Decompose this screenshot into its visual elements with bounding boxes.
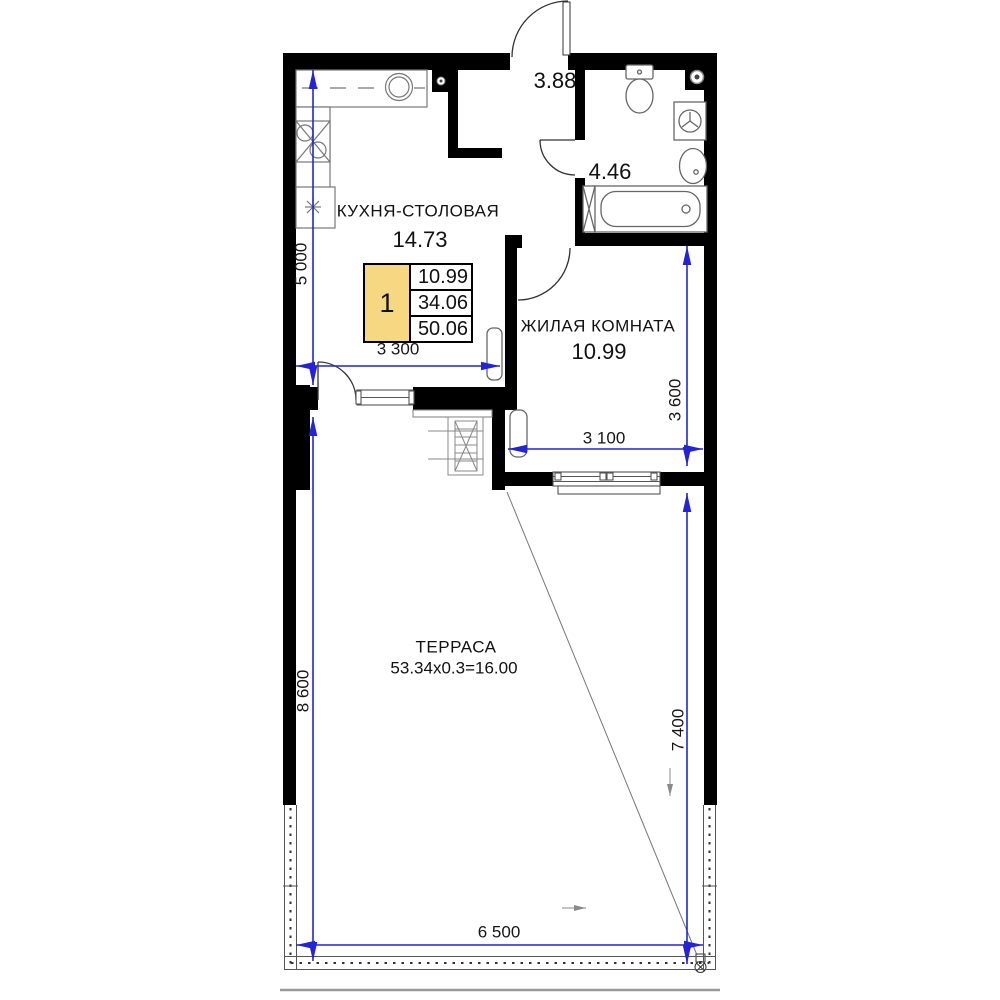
living-room-window [553,472,660,494]
total-area-value: 50.06 [411,317,471,341]
terrace-door [318,362,356,400]
floor-plan-drawing [0,0,1000,1000]
dim-8600-label: 8 600 [295,670,312,713]
entrance-door [512,1,570,57]
wall-terrace-left-jamb [283,387,318,410]
vent-dot-icon [440,80,443,83]
dim-6500-label: 6 500 [478,924,521,941]
toilet-icon [626,65,653,113]
wall-living-window-left [492,472,553,486]
kitchen-room-area: 14.73 [392,229,447,251]
wall-kitchen-divider-h [448,148,502,158]
wall-ledge [413,410,492,417]
kitchen-room-label: КУХНЯ-СТОЛОВАЯ [337,203,500,220]
radiator-icon [487,328,502,380]
hallway-area: 3.88 [534,70,577,92]
areas-column: 10.99 34.06 50.06 [411,265,471,341]
floor-plan: КУХНЯ-СТОЛОВАЯ 14.73 ЖИЛАЯ КОМНАТА 10.99… [0,0,1000,1000]
apartment-area-value: 34.06 [411,291,471,317]
bathroom-fixtures [583,65,707,232]
stove-icon [296,187,335,228]
walls [283,53,717,805]
wall-kitchen-terrace [413,387,505,410]
dim-3100-label: 3 100 [583,430,626,447]
window-sill [558,486,660,494]
terrace-details [428,417,706,973]
stairs-icon [428,417,483,475]
dim-3600-label: 3 600 [667,379,684,422]
washbasin-icon [680,149,707,184]
kitchen-window [356,390,414,405]
radiator-icon [510,410,527,457]
terrace-area-calc: 53.34x0.3=16.00 [390,660,517,677]
living-room-door [518,248,570,300]
living-room-label: ЖИЛАЯ КОМНАТА [521,318,675,335]
rooms-count-cell: 1 [365,265,411,341]
terrace-label: ТЕРРАСА [416,639,497,656]
wall-living-left [505,235,517,410]
washing-machine-icon [674,102,706,140]
bathroom-door [540,140,575,175]
wall-bathroom-left-upper [575,53,585,140]
cooktop-inner-icon [389,77,409,97]
dim-7400-label: 7 400 [670,709,687,752]
dim-5000-label: 5 000 [293,243,310,286]
bathtub-icon [594,186,707,232]
wall-living-window-right [660,472,704,486]
railing-right [702,805,717,970]
vent-dot-icon [695,75,700,80]
bathroom-area: 4.46 [589,161,632,183]
dim-3300-label: 3 300 [377,341,420,358]
terrace-railings [280,805,720,990]
living-area-value: 10.99 [411,265,471,291]
apartment-info-table: 1 10.99 34.06 50.06 [363,263,473,343]
railing-bottom [284,957,716,970]
wall-bathroom-bottom [575,233,717,246]
shower-screen-icon [583,186,595,232]
railing-left [283,805,298,970]
living-room-area: 10.99 [571,341,626,363]
wall-top-left [283,53,510,70]
